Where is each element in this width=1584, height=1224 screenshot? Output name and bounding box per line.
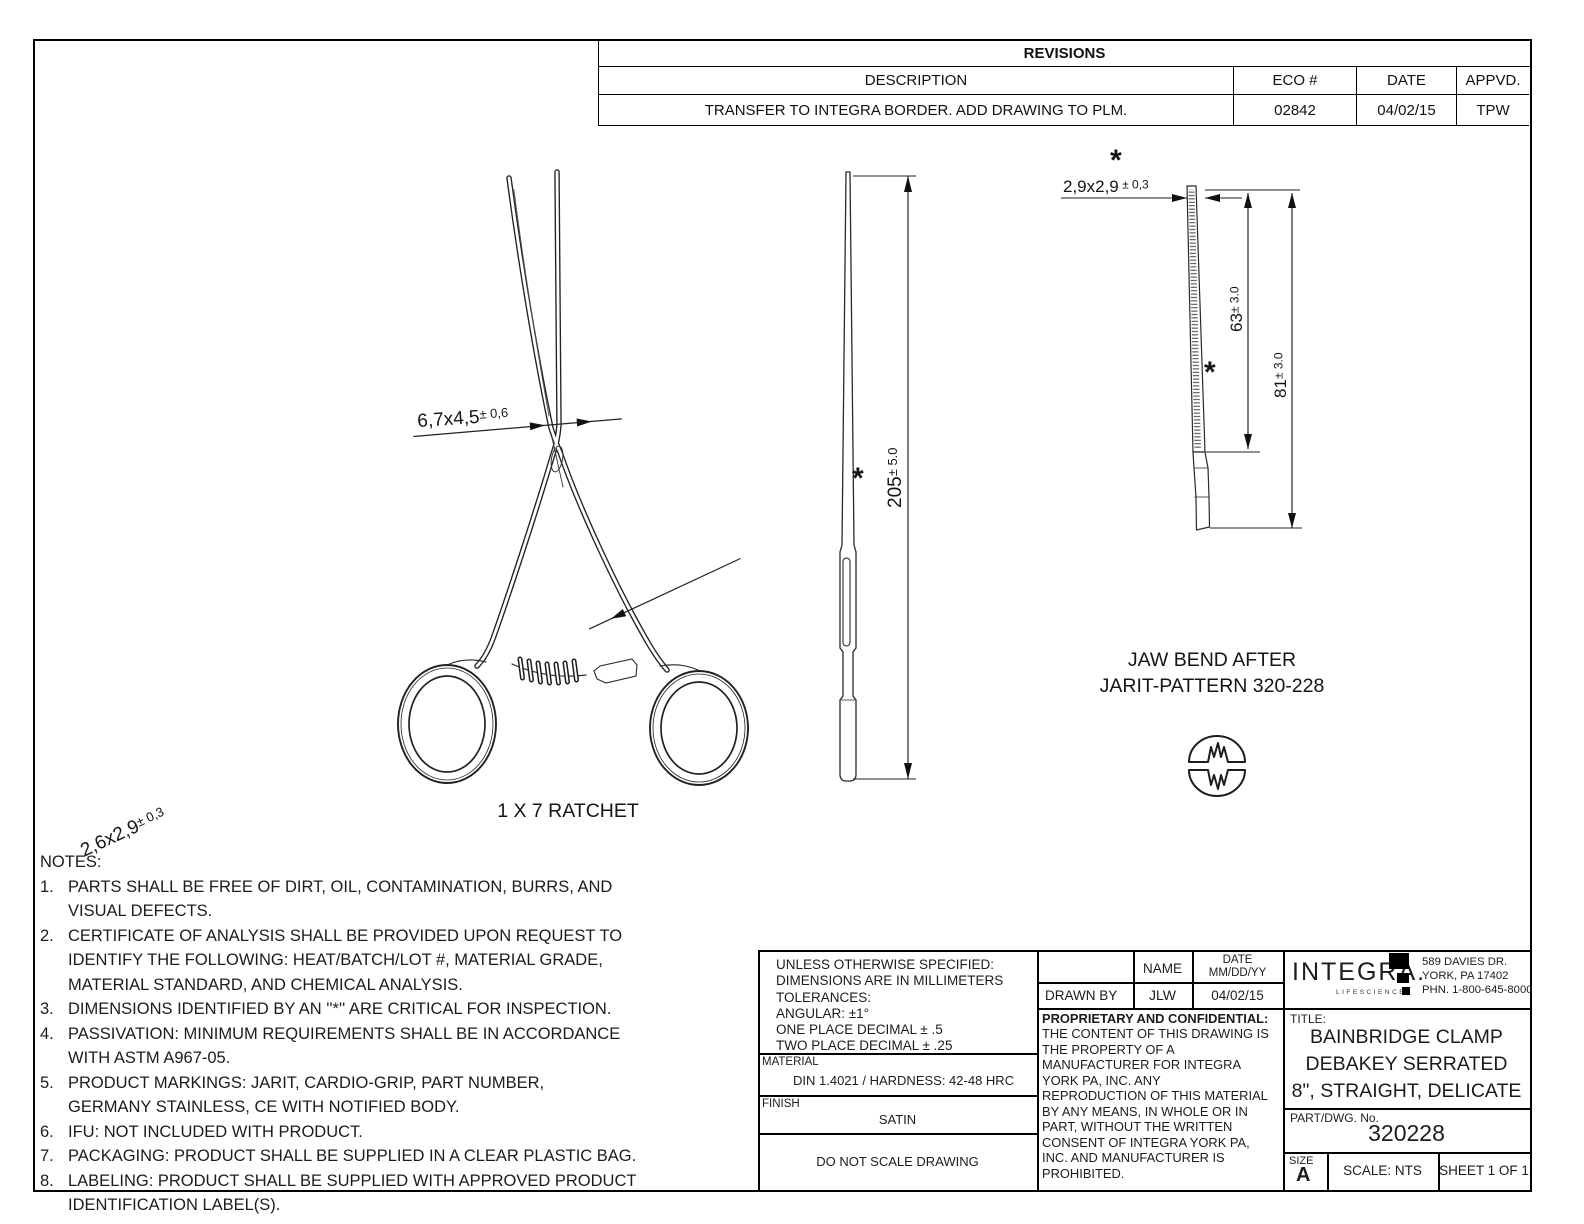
note-item: 1.PARTS SHALL BE FREE OF DIRT, OIL, CONT…: [40, 875, 690, 924]
revisions-col-eco: ECO #: [1233, 67, 1356, 95]
drawing-title-line2: DEBAKEY SERRATED: [1283, 1053, 1530, 1076]
drawing-title-line3: 8", STRAIGHT, DELICATE: [1283, 1080, 1530, 1103]
revision-row-appvd: TPW: [1456, 95, 1529, 126]
integra-logo-mark: [1389, 953, 1409, 969]
note-item: 8.LABELING: PRODUCT SHALL BE SUPPLIED WI…: [40, 1169, 690, 1218]
revisions-table: REVISIONS DESCRIPTION ECO # DATE APPVD. …: [598, 41, 1530, 126]
name-header: NAME: [1133, 961, 1192, 976]
note-item: 4.PASSIVATION: MINIMUM REQUIREMENTS SHAL…: [40, 1022, 690, 1071]
proprietary-body: THE CONTENT OF THIS DRAWING IS THE PROPE…: [1042, 1026, 1282, 1181]
integra-logo-mark: [1402, 987, 1410, 995]
note-item: 6.IFU: NOT INCLUDED WITH PRODUCT.: [40, 1120, 690, 1145]
do-not-scale-note: DO NOT SCALE DRAWING: [758, 1154, 1037, 1169]
drawn-by-date: 04/02/15: [1192, 988, 1283, 1003]
sheet-value: SHEET 1 OF 1: [1438, 1163, 1530, 1178]
revisions-col-date: DATE: [1356, 67, 1456, 95]
drawing-sheet: { "revisions": { "title": "REVISIONS", "…: [0, 0, 1584, 1224]
company-address: 589 DAVIES DR. YORK, PA 17402 PHN. 1-800…: [1422, 956, 1533, 997]
note-item: 5.PRODUCT MARKINGS: JARIT, CARDIO-GRIP, …: [40, 1071, 690, 1120]
revision-row-eco: 02842: [1233, 95, 1356, 126]
integra-logo-mark: [1397, 973, 1409, 983]
tolerance-notes: UNLESS OTHERWISE SPECIFIED: DIMENSIONS A…: [776, 957, 1003, 1055]
title-label: TITLE:: [1290, 1012, 1326, 1026]
proprietary-heading: PROPRIETARY AND CONFIDENTIAL:: [1042, 1011, 1280, 1027]
revision-row-description: TRANSFER TO INTEGRA BORDER. ADD DRAWING …: [599, 95, 1233, 126]
part-number: 320228: [1283, 1120, 1530, 1147]
notes-block: NOTES: 1.PARTS SHALL BE FREE OF DIRT, OI…: [40, 850, 690, 1218]
revisions-title: REVISIONS: [599, 41, 1530, 67]
material-value: DIN 1.4021 / HARDNESS: 42-48 HRC: [793, 1073, 1014, 1088]
note-item: 2.CERTIFICATE OF ANALYSIS SHALL BE PROVI…: [40, 924, 690, 998]
notes-title: NOTES:: [40, 850, 690, 875]
note-item: 7.PACKAGING: PRODUCT SHALL BE SUPPLIED I…: [40, 1144, 690, 1169]
drawn-by-label: DRAWN BY: [1045, 988, 1117, 1003]
revisions-col-appvd: APPVD.: [1456, 67, 1529, 95]
note-item: 3.DIMENSIONS IDENTIFIED BY AN ''*'' ARE …: [40, 997, 690, 1022]
revisions-col-description: DESCRIPTION: [599, 67, 1233, 95]
material-label: MATERIAL: [762, 1056, 819, 1068]
drawing-title-line1: BAINBRIDGE CLAMP: [1283, 1026, 1530, 1049]
drawn-by-name: JLW: [1133, 987, 1192, 1003]
finish-value: SATIN: [758, 1112, 1037, 1127]
date-header: DATE MM/DD/YY: [1192, 954, 1283, 980]
finish-label: FINISH: [762, 1098, 800, 1110]
revision-row-date: 04/02/15: [1356, 95, 1456, 126]
scale-value: SCALE: NTS: [1327, 1163, 1438, 1178]
size-value: A: [1296, 1164, 1310, 1187]
